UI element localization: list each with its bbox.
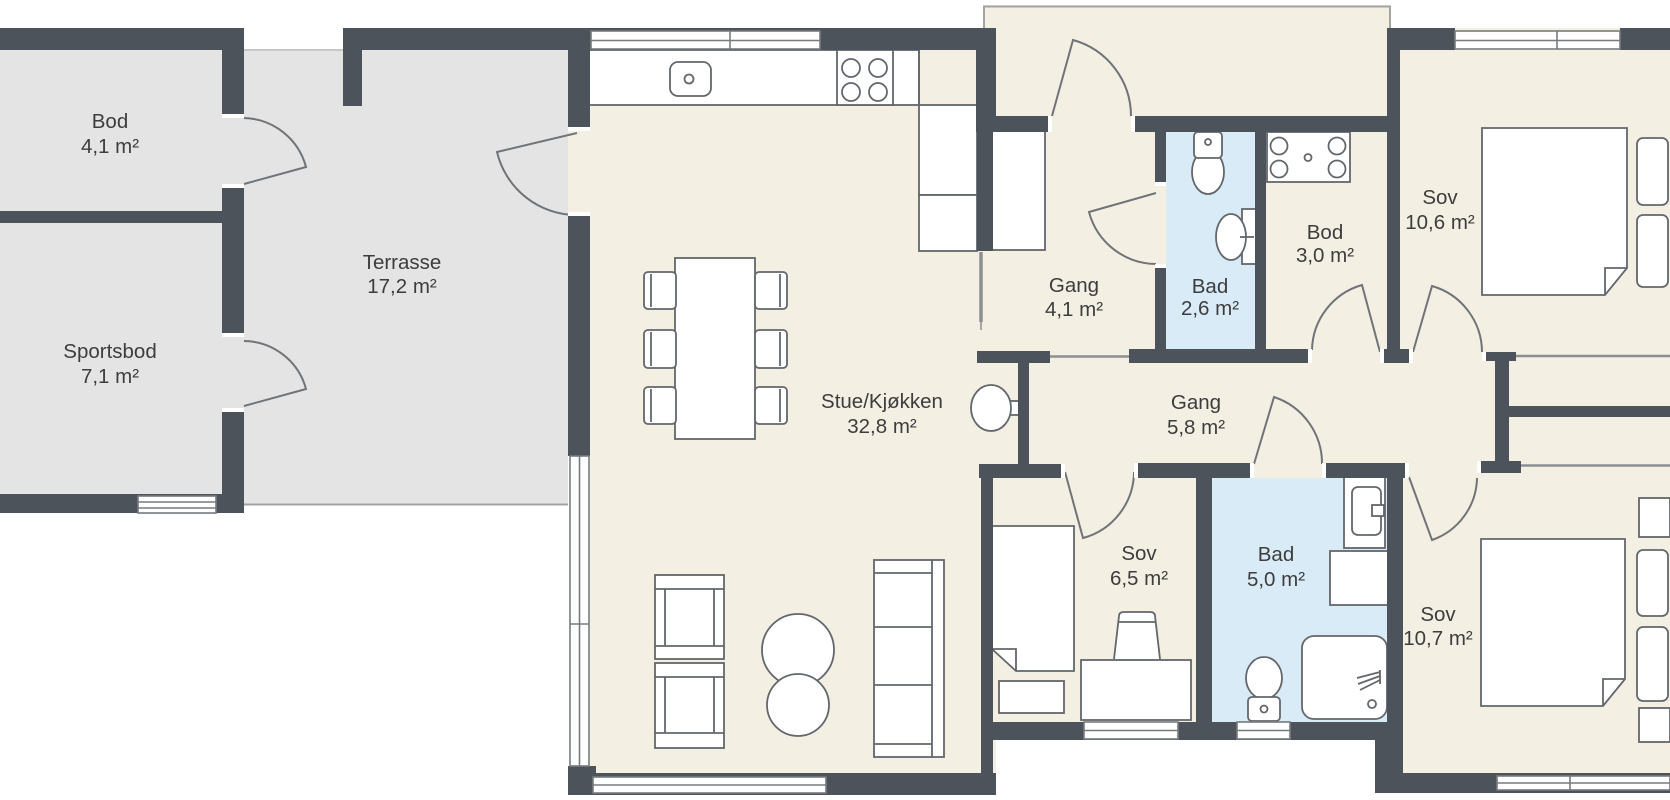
svg-text:Terrasse17,2 m²: Terrasse17,2 m² bbox=[363, 251, 442, 298]
svg-text:Gang4,1 m²: Gang4,1 m² bbox=[1045, 274, 1103, 321]
